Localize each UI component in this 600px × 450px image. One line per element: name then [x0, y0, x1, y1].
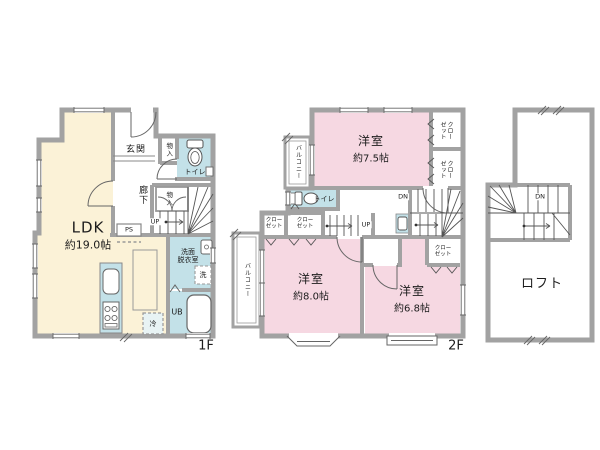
label-ps: PS: [125, 226, 133, 233]
label-fridge: 冷: [150, 320, 157, 328]
label-stair-storage: 物入: [164, 192, 171, 207]
floorplan: LDK 約19.0帖 玄関 物入 トイレ 廊下 物入 UP PS 洗面 脱衣室 …: [0, 0, 600, 450]
label-closet-tr2: クローゼット: [439, 158, 453, 181]
label-up-1f: UP: [150, 218, 161, 225]
toilet-icon-1f: [187, 140, 203, 166]
label-hallway: 廊下: [137, 185, 147, 205]
label-up-2f: UP: [361, 221, 372, 228]
room-label-68: 洋室: [399, 285, 425, 299]
room-80: [264, 239, 360, 335]
label-balcony-bottom: バルコニー: [243, 263, 250, 298]
kitchen-counter: [100, 263, 122, 333]
label-loft: ロフト: [521, 278, 563, 293]
label-unit-bath: UB: [171, 307, 182, 316]
label-closet-hall2: クロー ゼット: [297, 218, 314, 231]
room-area-80: 約8.0帖: [293, 291, 329, 303]
label-closet-tr1: クローゼット: [439, 119, 453, 142]
toilet-remote-icon: [206, 167, 213, 176]
label-toilet-2f: トイレ: [314, 195, 335, 203]
floor-label-2f: 2F: [448, 340, 464, 355]
floor-label-1f: 1F: [198, 340, 214, 355]
room-label-80: 洋室: [298, 273, 324, 287]
stairs-up-2f: [326, 215, 358, 236]
label-entrance-storage: 物入: [164, 143, 171, 158]
label-washer: 洗: [200, 271, 207, 279]
label-entrance: 玄関: [126, 145, 146, 155]
label-toilet-1f: トイレ: [185, 168, 206, 176]
label-closet-hall1: クロー ゼット: [266, 218, 283, 231]
room-area-68: 約6.8帖: [394, 303, 430, 315]
kitchen-sink-icon: [103, 269, 119, 294]
room-area-75: 約7.5帖: [353, 153, 389, 165]
room-label-75: 洋室: [358, 135, 384, 149]
label-closet-68: クロー ゼット: [435, 246, 452, 259]
room-75: [314, 112, 429, 186]
label-balcony-top: バルコニー: [294, 145, 301, 180]
room-label-ldk: LDK: [72, 219, 105, 236]
stove-icon: [103, 302, 119, 329]
label-dn-2f: DN: [397, 193, 409, 200]
kitchen-island: [133, 250, 157, 310]
stairs-dn-2f: [410, 189, 463, 237]
label-dn-loft: DN: [534, 193, 546, 200]
room-area-ldk: 約19.0帖: [65, 240, 112, 253]
bathtub-icon: [187, 295, 211, 333]
label-washroom: 洗面 脱衣室: [178, 248, 199, 264]
loft-plan: [488, 106, 592, 345]
